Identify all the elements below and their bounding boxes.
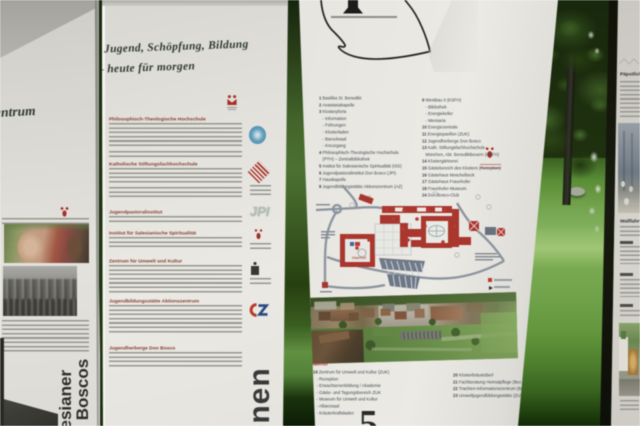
svg-text:Maierhof: Maierhof (352, 256, 366, 260)
